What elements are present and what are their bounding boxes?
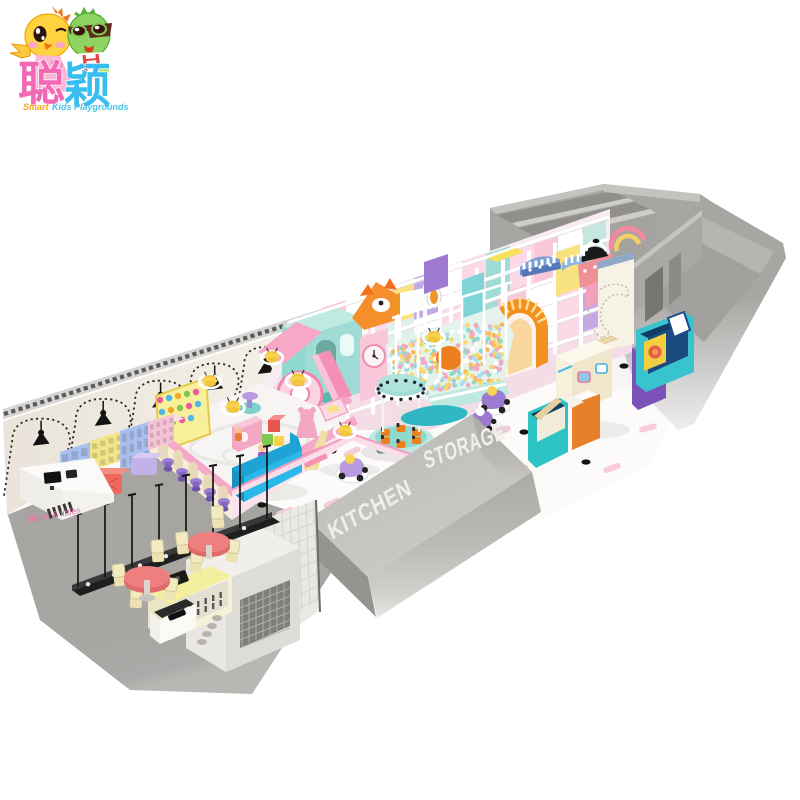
svg-text:Smart: Smart: [23, 102, 50, 112]
svg-text:Kids Playgrounds: Kids Playgrounds: [52, 102, 129, 112]
